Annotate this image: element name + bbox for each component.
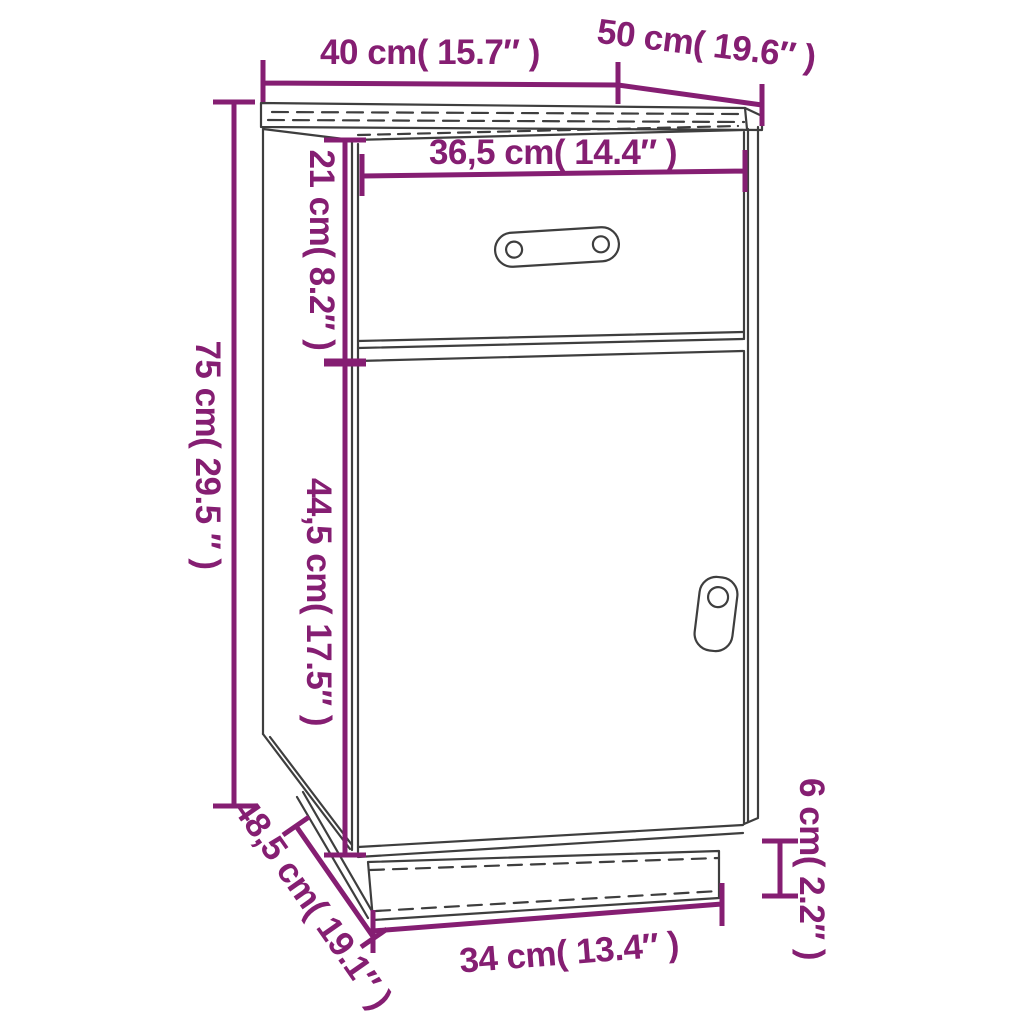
dim-door-height-label: 44,5 cm( 17.5″ ) [299, 478, 338, 726]
dim-top-depth-label: 50 cm( 19.6″ ) [595, 12, 818, 78]
product-dimension-diagram: 40 cm( 15.7″ ) 50 cm( 19.6″ ) 36,5 cm( 1… [0, 0, 1024, 1024]
diagram-canvas: 40 cm( 15.7″ ) 50 cm( 19.6″ ) 36,5 cm( 1… [0, 0, 1024, 1024]
drawer-handle [494, 226, 620, 268]
dim-drawer-height-label: 21 cm( 8.2″ ) [302, 150, 341, 351]
dim-drawer-width-label: 36,5 cm( 14.4″ ) [429, 133, 677, 172]
cabinet-top-panel-end [745, 108, 747, 129]
dim-top-depth-line [618, 84, 762, 126]
door-handle [693, 575, 740, 653]
cabinet-top-grain [268, 112, 744, 122]
cabinet-right-edge [744, 127, 758, 824]
cabinet-front-left-edge [352, 140, 358, 852]
dim-plinth-height-label: 6 cm( 2.2″ ) [792, 778, 831, 960]
drawer-bottom-edge [358, 332, 743, 348]
dim-top-width-label: 40 cm( 15.7″ ) [320, 33, 540, 72]
cabinet-top-panel [261, 103, 762, 130]
dim-base-width-label: 34 cm( 13.4″ ) [458, 924, 680, 980]
plinth-grain [370, 858, 719, 911]
dim-overall-height-label: 75 cm( 29.5 ″ ) [188, 340, 227, 569]
door-top-edge [358, 351, 743, 361]
